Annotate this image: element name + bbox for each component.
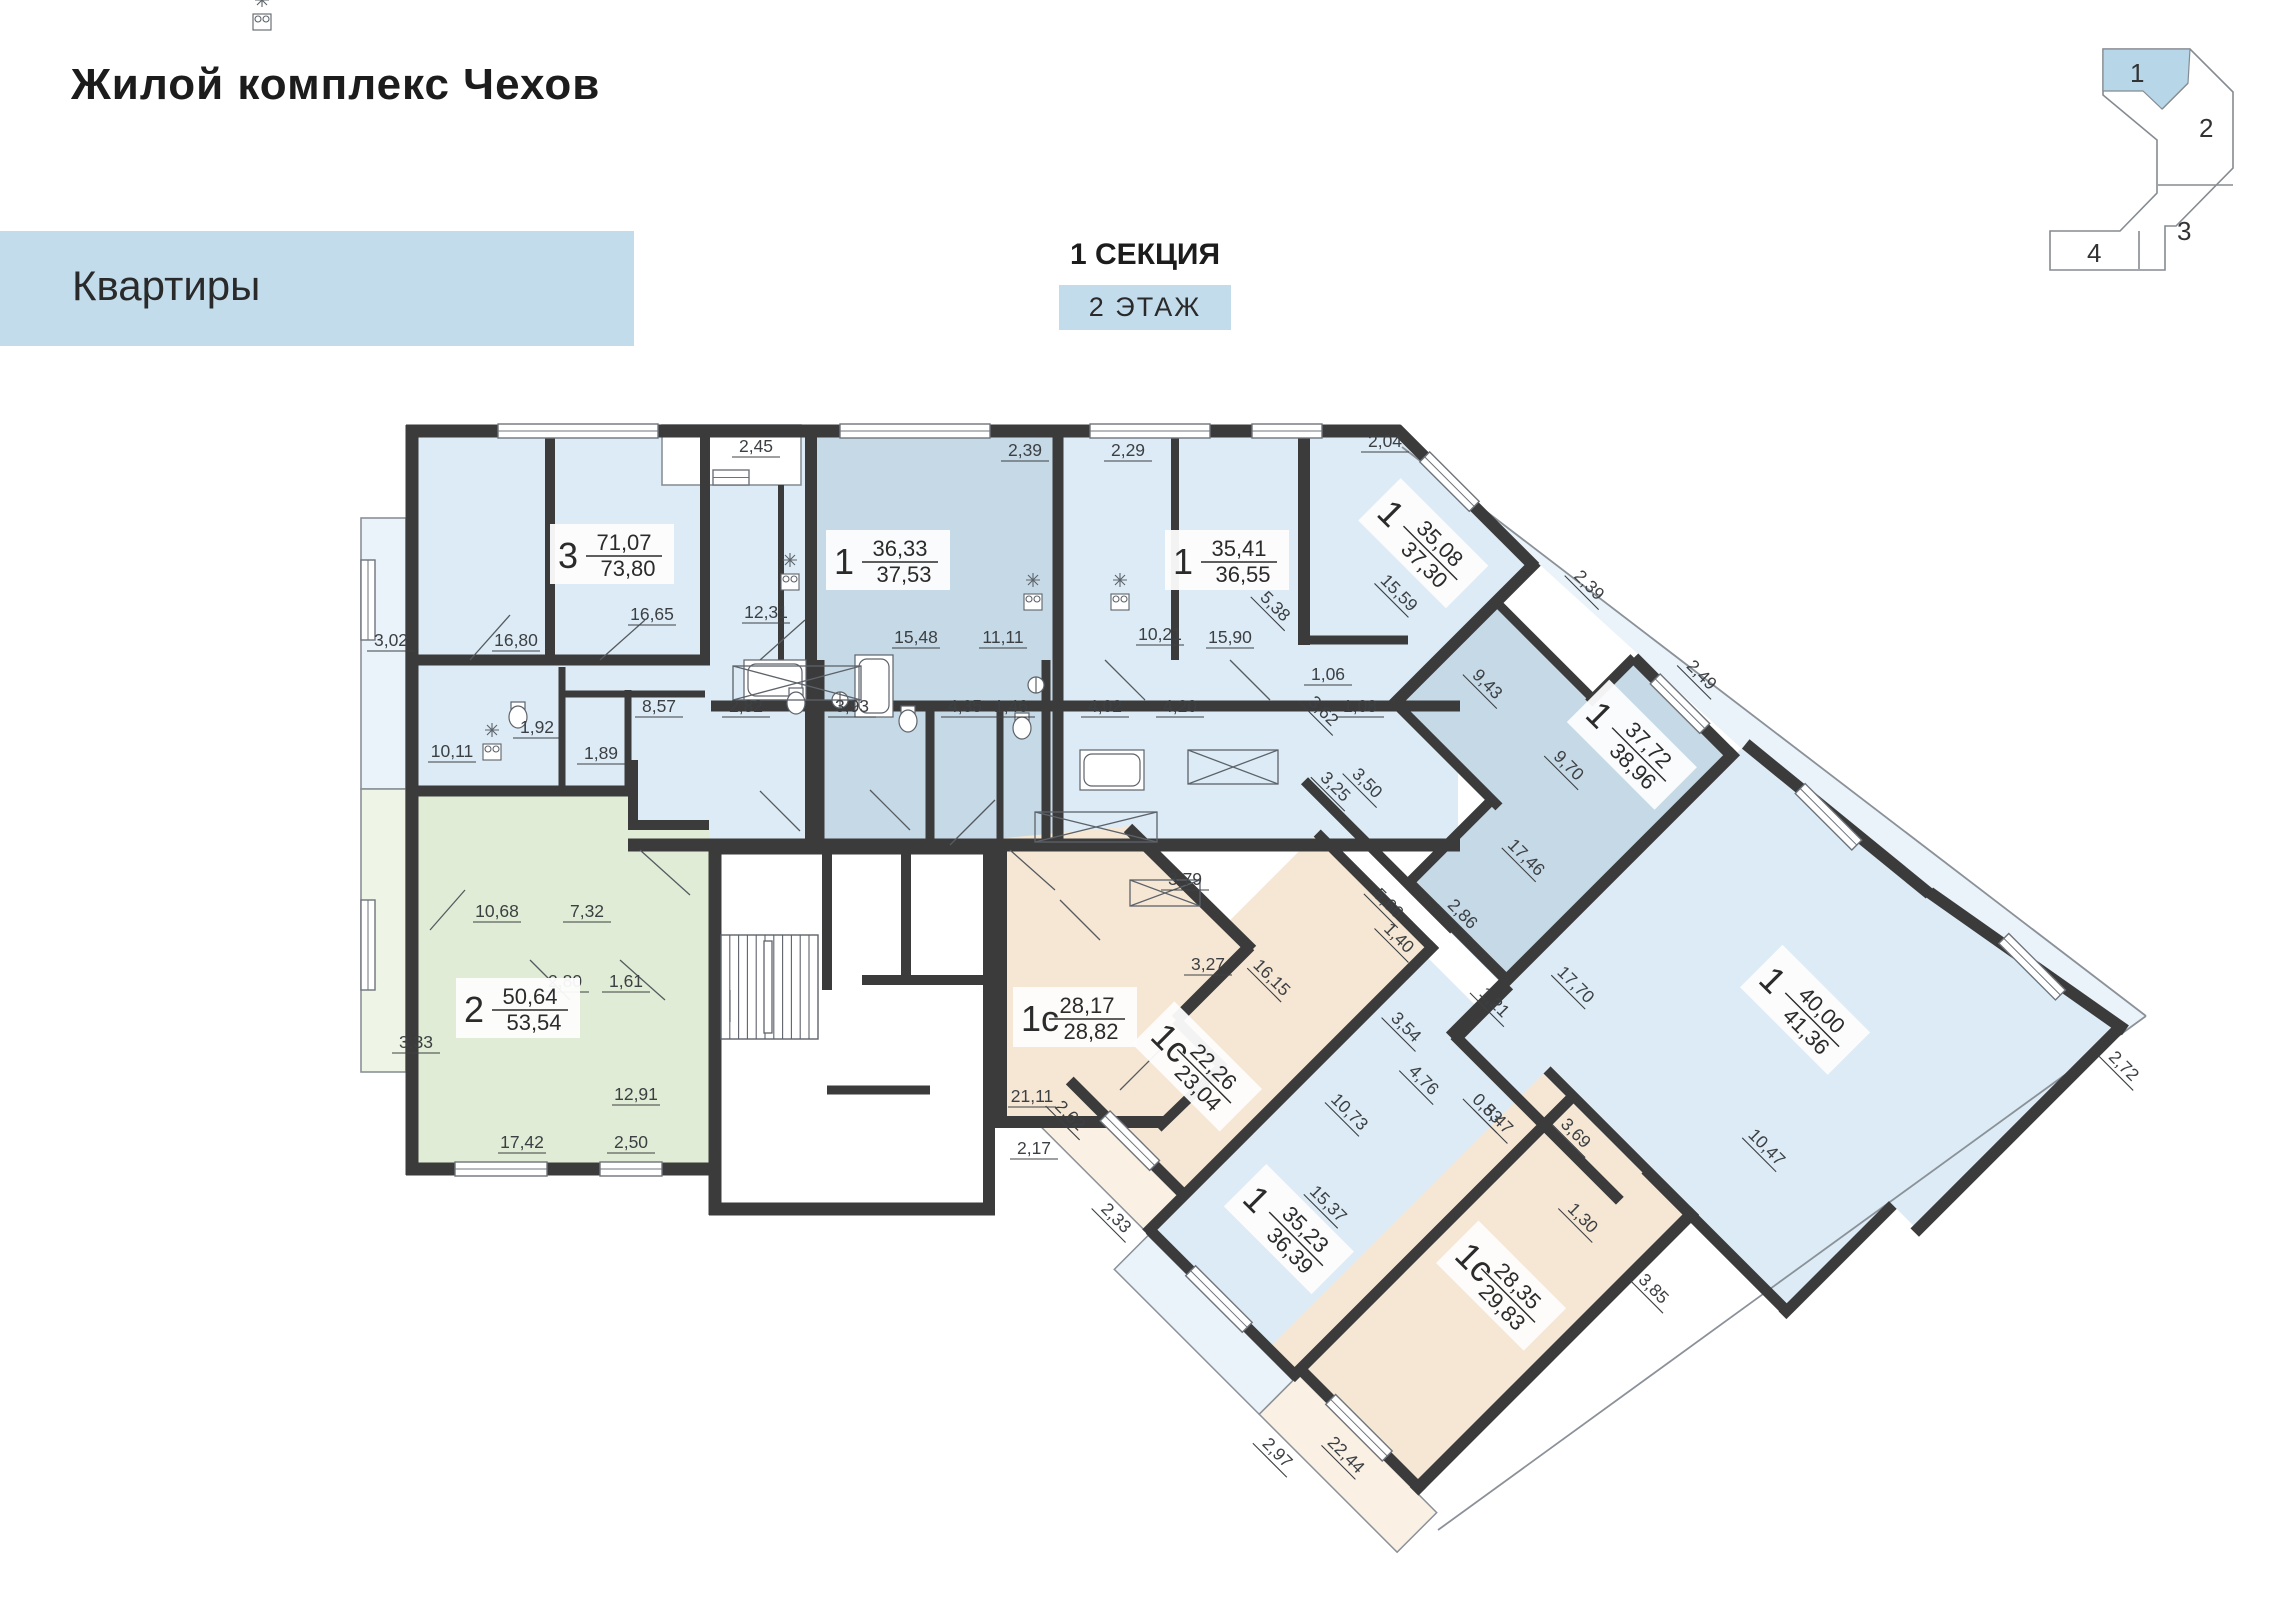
- svg-text:2,50: 2,50: [614, 1132, 648, 1152]
- svg-text:2,29: 2,29: [1111, 440, 1145, 460]
- svg-text:2,45: 2,45: [739, 436, 773, 456]
- svg-text:1,61: 1,61: [609, 971, 643, 991]
- svg-text:1: 1: [1173, 541, 1193, 582]
- svg-text:7,32: 7,32: [570, 901, 604, 921]
- svg-text:28,82: 28,82: [1063, 1019, 1118, 1044]
- svg-text:1,06: 1,06: [1311, 664, 1345, 684]
- svg-text:53,54: 53,54: [506, 1010, 561, 1035]
- svg-text:12,31: 12,31: [744, 602, 788, 622]
- svg-text:1,92: 1,92: [520, 717, 554, 737]
- svg-text:3: 3: [558, 535, 578, 576]
- svg-text:16,80: 16,80: [494, 630, 538, 650]
- svg-text:10,21: 10,21: [1138, 624, 1182, 644]
- svg-text:37,53: 37,53: [876, 562, 931, 587]
- svg-text:3: 3: [2177, 216, 2191, 246]
- svg-text:8,57: 8,57: [642, 696, 676, 716]
- svg-text:4,02: 4,02: [1088, 696, 1122, 716]
- svg-text:10,68: 10,68: [475, 901, 519, 921]
- svg-text:50,64: 50,64: [502, 984, 557, 1009]
- svg-text:1,08: 1,08: [1343, 696, 1377, 716]
- svg-text:28,17: 28,17: [1059, 993, 1114, 1018]
- svg-text:2,39: 2,39: [1570, 566, 1608, 604]
- svg-text:11,11: 11,11: [982, 627, 1023, 647]
- svg-text:2,82: 2,82: [729, 696, 763, 716]
- svg-text:73,80: 73,80: [600, 556, 655, 581]
- svg-text:15,48: 15,48: [894, 627, 938, 647]
- svg-text:1,46: 1,46: [994, 696, 1028, 716]
- svg-text:71,07: 71,07: [596, 530, 651, 555]
- svg-text:2,72: 2,72: [2105, 1047, 2143, 1085]
- svg-text:15,90: 15,90: [1208, 627, 1252, 647]
- svg-text:21,11: 21,11: [1011, 1086, 1054, 1106]
- svg-text:35,41: 35,41: [1211, 536, 1266, 561]
- svg-text:12,91: 12,91: [614, 1084, 658, 1104]
- svg-text:36,33: 36,33: [872, 536, 927, 561]
- svg-text:17,42: 17,42: [500, 1132, 544, 1152]
- svg-text:4,35: 4,35: [948, 696, 982, 716]
- svg-text:2: 2: [2199, 113, 2213, 143]
- svg-text:3,85: 3,85: [1635, 1269, 1673, 1307]
- svg-text:4,20: 4,20: [1163, 696, 1197, 716]
- svg-text:2,39: 2,39: [1008, 440, 1042, 460]
- svg-text:10,11: 10,11: [431, 741, 474, 761]
- svg-text:1: 1: [834, 541, 854, 582]
- svg-text:3,02: 3,02: [374, 630, 408, 650]
- svg-text:3,79: 3,79: [1168, 869, 1202, 889]
- svg-text:2,04: 2,04: [1368, 431, 1402, 451]
- svg-text:36,55: 36,55: [1215, 562, 1270, 587]
- svg-text:1,89: 1,89: [584, 743, 618, 763]
- svg-text:2: 2: [464, 989, 484, 1030]
- svg-text:4: 4: [2087, 238, 2101, 268]
- svg-text:2,17: 2,17: [1017, 1138, 1051, 1158]
- svg-text:3,33: 3,33: [399, 1032, 433, 1052]
- svg-text:3,93: 3,93: [835, 696, 869, 716]
- svg-text:1: 1: [2130, 58, 2144, 88]
- svg-text:3,27: 3,27: [1191, 954, 1225, 974]
- svg-text:16,65: 16,65: [630, 604, 674, 624]
